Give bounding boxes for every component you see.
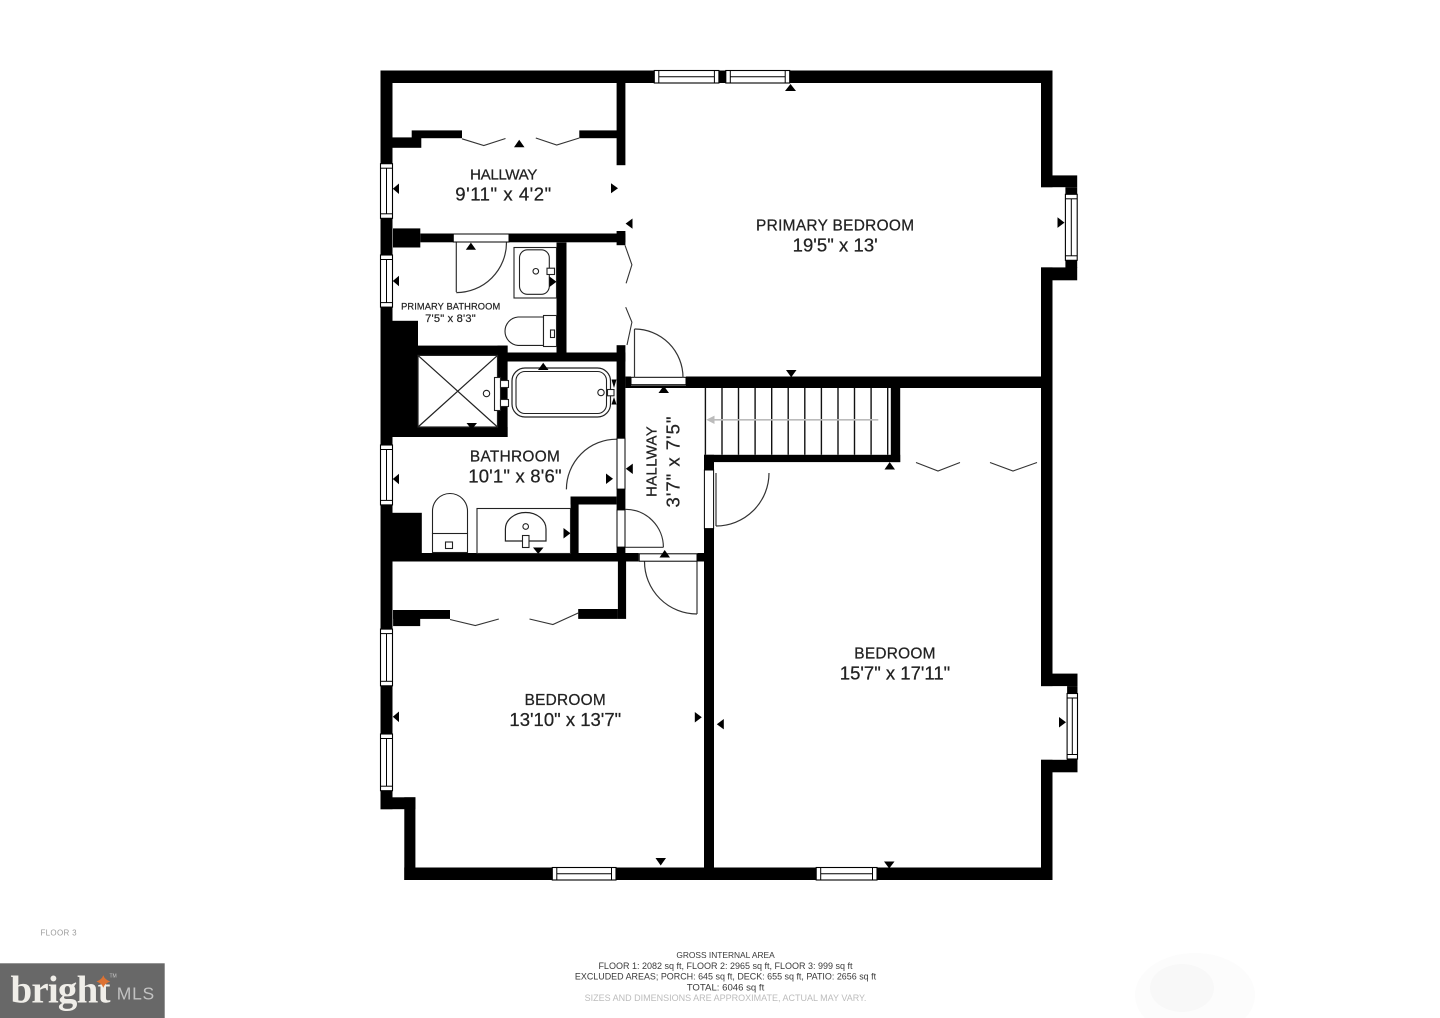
svg-text:HALLWAY: HALLWAY xyxy=(470,167,537,184)
svg-text:FLOOR 3: FLOOR 3 xyxy=(41,928,78,937)
svg-text:bright: bright xyxy=(11,969,111,1012)
svg-text:EXCLUDED AREAS; PORCH: 645 sq: EXCLUDED AREAS; PORCH: 645 sq ft, DECK: … xyxy=(575,972,877,982)
svg-text:FLOOR 1: 2082 sq ft, FLOOR 2:: FLOOR 1: 2082 sq ft, FLOOR 2: 2965 sq ft… xyxy=(598,961,853,971)
svg-text:TM: TM xyxy=(110,974,117,980)
svg-text:BEDROOM: BEDROOM xyxy=(525,692,606,709)
svg-text:3'7" x 7'5": 3'7" x 7'5" xyxy=(663,416,684,508)
svg-text:7'5" x 8'3": 7'5" x 8'3" xyxy=(425,313,476,325)
svg-text:BATHROOM: BATHROOM xyxy=(470,448,560,465)
svg-text:PRIMARY BATHROOM: PRIMARY BATHROOM xyxy=(401,301,500,311)
svg-text:GROSS INTERNAL AREA: GROSS INTERNAL AREA xyxy=(676,950,775,960)
svg-text:PRIMARY BEDROOM: PRIMARY BEDROOM xyxy=(756,217,914,234)
svg-text:HALLWAY: HALLWAY xyxy=(644,426,661,497)
svg-text:19'5" x 13': 19'5" x 13' xyxy=(793,234,878,255)
svg-text:MLS: MLS xyxy=(117,983,155,1003)
svg-text:13'10" x 13'7": 13'10" x 13'7" xyxy=(509,709,621,730)
svg-text:BEDROOM: BEDROOM xyxy=(854,645,935,662)
svg-text:SIZES AND DIMENSIONS ARE APPRO: SIZES AND DIMENSIONS ARE APPROXIMATE, AC… xyxy=(585,993,867,1003)
svg-text:15'7" x 17'11": 15'7" x 17'11" xyxy=(840,662,950,683)
svg-text:9'11" x 4'2": 9'11" x 4'2" xyxy=(455,184,551,205)
svg-text:TOTAL: 6046 sq ft: TOTAL: 6046 sq ft xyxy=(687,982,765,993)
svg-text:10'1" x 8'6": 10'1" x 8'6" xyxy=(468,465,562,486)
